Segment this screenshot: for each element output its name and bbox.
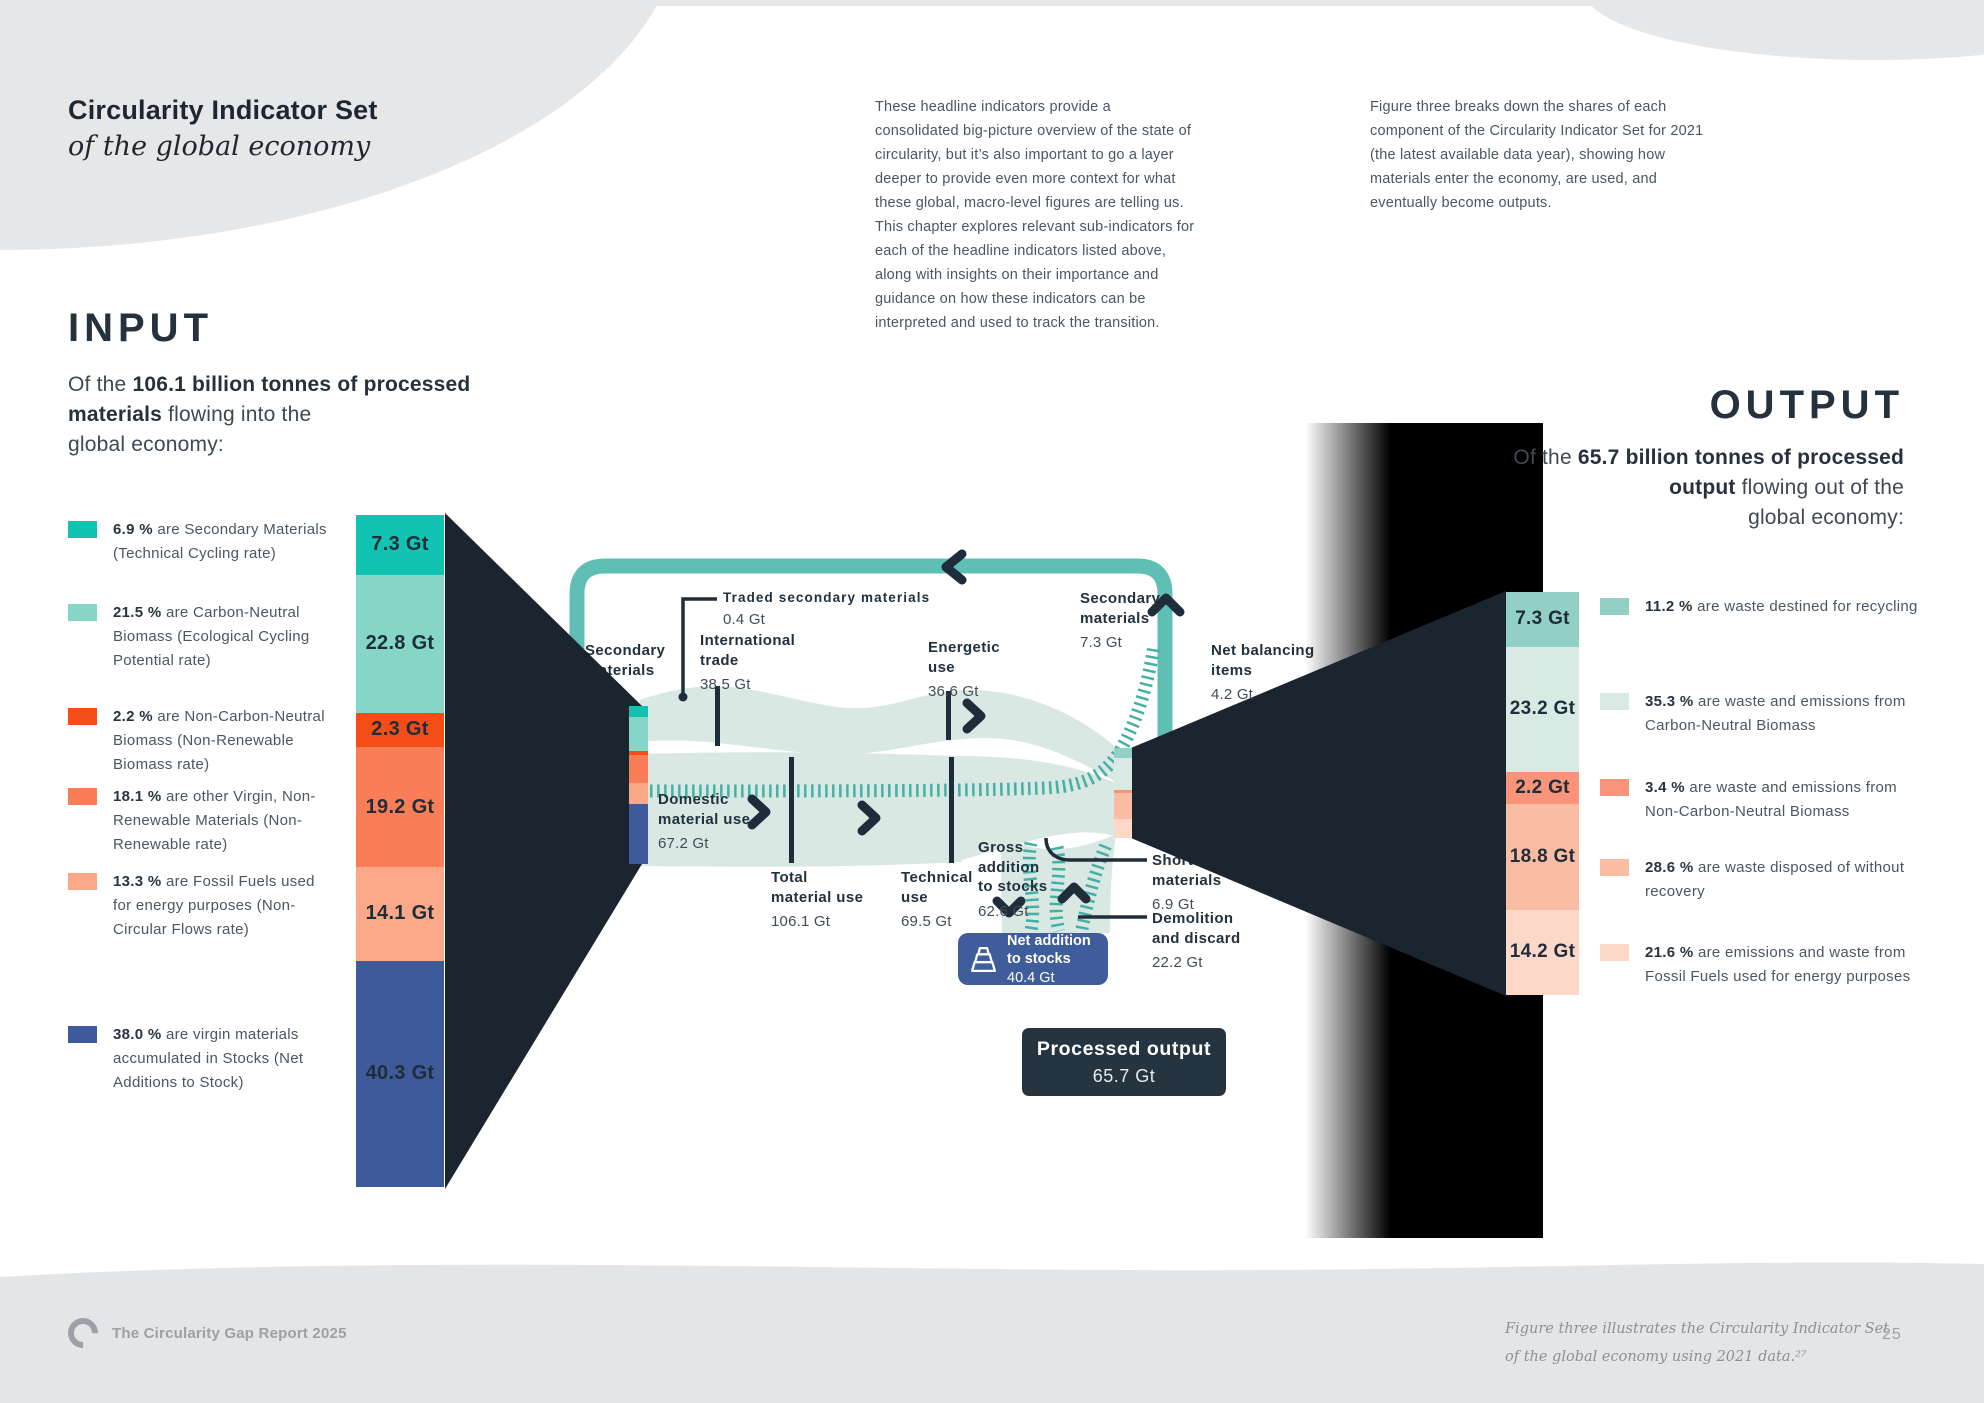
report-page: Circularity Indicator Set of the global … [0, 0, 1984, 1403]
legend-swatch [1600, 859, 1629, 876]
bar-segment: 19.2 Gt [356, 747, 444, 867]
bar-segment: 18.8 Gt [1506, 804, 1579, 910]
output-subtitle: Of the 65.7 billion tonnes of processed … [1504, 443, 1904, 533]
input-legend-item: 21.5 % are Carbon-Neutral Biomass (Ecolo… [68, 601, 331, 673]
page-title: Circularity Indicator Set of the global … [68, 95, 378, 162]
page-title-italic: of the global economy [68, 131, 378, 162]
legend-swatch [68, 604, 97, 621]
page-title-bold: Circularity Indicator Set [68, 95, 378, 126]
intro-paragraph-1: These headline indicators provide a cons… [875, 95, 1195, 335]
label-energetic-use: Energetic use36.6 Gt [928, 638, 1000, 702]
bar-segment: 7.3 Gt [1506, 592, 1579, 647]
bar-segment: 40.3 Gt [356, 961, 444, 1187]
legend-swatch [68, 1026, 97, 1043]
bar-segment: 2.2 Gt [1506, 772, 1579, 804]
input-heading: INPUT [68, 306, 213, 351]
bar-segment: 2.3 Gt [356, 713, 444, 748]
output-subtitle-rest: flowing out of the global economy: [1736, 476, 1904, 529]
legend-swatch [1600, 779, 1629, 796]
input-subtitle-prefix: Of the [68, 373, 132, 396]
label-secondary-materials-recycled: Secondary materials7.3 Gt [1080, 589, 1160, 653]
intro-paragraph-2: Figure three breaks down the shares of e… [1370, 95, 1710, 215]
processed-output-value: 65.7 Gt [1093, 1066, 1156, 1087]
page-number: 25 [1882, 1326, 1902, 1344]
net-addition-label: Net addition to stocks [1007, 932, 1091, 968]
input-legend-item: 2.2 % are Non-Carbon-Neutral Biomass (No… [68, 705, 331, 777]
label-technical-use: Technical use69.5 Gt [901, 868, 973, 932]
processed-output-badge: Processed output 65.7 Gt [1022, 1028, 1226, 1096]
legend-swatch [68, 873, 97, 890]
label-demolition-and-discard: Demolition and discard22.2 Gt [1152, 909, 1241, 973]
label-net-balancing-items: Net balancing items4.2 Gt [1211, 641, 1315, 705]
input-subtitle: Of the 106.1 billion tonnes of processed… [68, 370, 488, 460]
legend-swatch [68, 708, 97, 725]
output-subtitle-prefix: Of the [1513, 446, 1577, 469]
output-heading: OUTPUT [1710, 383, 1904, 428]
net-addition-value: 40.4 Gt [1007, 970, 1091, 986]
label-traded-secondary-materials: Traded secondary materials0.4 Gt [723, 589, 930, 629]
output-legend-item: 11.2 % are waste destined for recycling [1600, 595, 1923, 619]
circularity-gap-logo-icon [62, 1312, 104, 1354]
stocks-building-icon [970, 945, 997, 974]
input-stacked-bar: 7.3 Gt 22.8 Gt 2.3 Gt 19.2 Gt 14.1 Gt 40… [356, 515, 444, 1187]
label-domestic-material-use: Domestic material use67.2 Gt [658, 790, 750, 854]
bar-segment: 23.2 Gt [1506, 647, 1579, 772]
label-gross-addition-to-stocks: Gross addition to stocks62.6 Gt [978, 838, 1047, 921]
input-mini-bar [629, 706, 648, 864]
legend-swatch [1600, 598, 1629, 615]
input-legend-item: 6.9 % are Secondary Materials (Technical… [68, 518, 331, 566]
legend-swatch [68, 788, 97, 805]
output-legend-item: 3.4 % are waste and emissions from Non-C… [1600, 776, 1923, 824]
bar-segment: 7.3 Gt [356, 515, 444, 575]
net-addition-to-stocks-badge: Net addition to stocks 40.4 Gt [958, 933, 1108, 985]
bar-segment: 14.1 Gt [356, 867, 444, 961]
footer-brand: The Circularity Gap Report 2025 [68, 1318, 347, 1348]
input-funnel [445, 513, 642, 1189]
legend-swatch [68, 521, 97, 538]
footer-brand-text: The Circularity Gap Report 2025 [112, 1325, 347, 1342]
output-legend-item: 21.6 % are emissions and waste from Foss… [1600, 941, 1923, 989]
input-legend-item: 13.3 % are Fossil Fuels used for energy … [68, 870, 331, 942]
label-total-material-use: Total material use106.1 Gt [771, 868, 863, 932]
legend-swatch [1600, 693, 1629, 710]
figure-caption: Figure three illustrates the Circularity… [1505, 1315, 1889, 1372]
bar-segment: 14.2 Gt [1506, 910, 1579, 995]
output-mini-bar [1114, 748, 1132, 838]
processed-output-label: Processed output [1037, 1038, 1211, 1061]
input-legend-item: 38.0 % are virgin materials accumulated … [68, 1023, 331, 1095]
output-stacked-bar: 7.3 Gt 23.2 Gt 2.2 Gt 18.8 Gt 14.2 Gt [1506, 592, 1579, 995]
bar-segment: 22.8 Gt [356, 575, 444, 713]
output-legend-item: 35.3 % are waste and emissions from Carb… [1600, 690, 1923, 738]
legend-swatch [1600, 944, 1629, 961]
input-legend-item: 18.1 % are other Virgin, Non-Renewable M… [68, 785, 331, 857]
output-legend-item: 28.6 % are waste disposed of without rec… [1600, 856, 1923, 904]
leader-dot [679, 693, 688, 702]
label-international-trade: International trade38.5 Gt [700, 631, 795, 695]
